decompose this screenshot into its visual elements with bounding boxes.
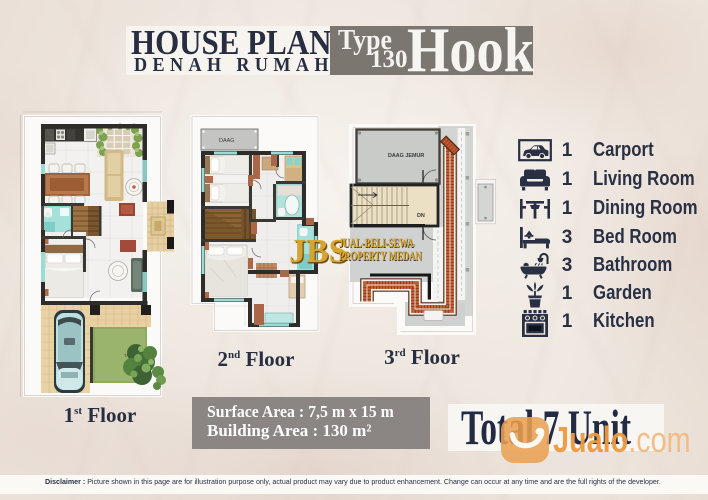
svg-text:DN: DN	[417, 213, 425, 219]
svg-text:DAAG JEMUR: DAAG JEMUR	[388, 153, 424, 159]
svg-text:DAAG: DAAG	[219, 138, 235, 144]
